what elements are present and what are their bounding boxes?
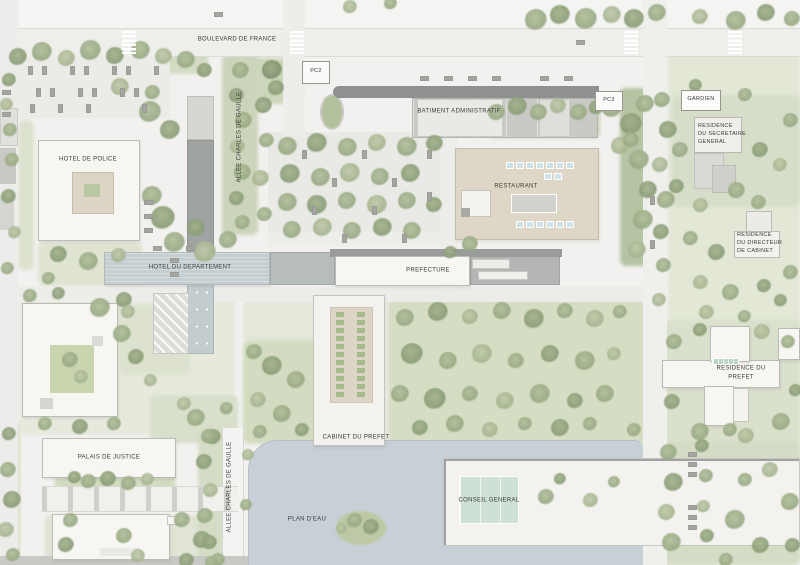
site-plan: BOULEVARD DE FRANCE ALLEE CHARLES DE GAU… xyxy=(0,0,800,565)
road-top-strip xyxy=(0,0,800,28)
tree-icon xyxy=(142,186,162,206)
label-boulevard-de-france: BOULEVARD DE FRANCE xyxy=(198,36,277,45)
label-gardien: GARDIEN xyxy=(687,96,714,104)
cabinet-planting-row xyxy=(357,312,365,400)
road-grid-south xyxy=(268,232,444,246)
batiment-administratif-cell xyxy=(418,100,502,136)
building-left-edge xyxy=(0,148,16,184)
palais-south-step xyxy=(100,548,140,556)
tree-icon xyxy=(151,206,175,230)
restaurant-annex-corner xyxy=(461,208,470,217)
tree-icon xyxy=(164,232,185,253)
parked-car-icon xyxy=(444,76,453,81)
label-pc3: PC3 xyxy=(603,97,615,105)
building-left-edge xyxy=(0,108,18,146)
lawn-central-park xyxy=(388,298,645,445)
building-residence-du-prefet-top xyxy=(710,326,750,362)
building-right-edge xyxy=(778,328,800,360)
hotel-de-police-garden xyxy=(84,184,100,197)
label-allee-charles-de-gaulle-south: ALLEE CHARLES DE GAULLE xyxy=(226,442,235,533)
label-hotel-du-departement: HOTEL DU DEPARTEMENT xyxy=(149,264,232,273)
square-west-rooftop xyxy=(40,398,53,409)
building-batiment-administratif-roof xyxy=(333,86,599,98)
residence-secretaire-wing2 xyxy=(712,165,736,193)
building-wing-north xyxy=(187,96,214,140)
label-palais-de-justice: PALAIS DE JUSTICE xyxy=(78,454,140,463)
label-conseil-general: CONSEIL GENERAL xyxy=(459,497,520,506)
label-cabinet-du-prefet: CABINET DU PREFET xyxy=(323,434,390,443)
road-boulevard-de-france xyxy=(0,28,800,57)
label-residence-secretaire-general: RESIDENCE DU SECRETAIRE GENERAL xyxy=(698,123,746,147)
building-band-crossing xyxy=(270,252,335,285)
parked-car-icon xyxy=(153,246,162,251)
parked-car-icon xyxy=(540,76,549,81)
palais-colonnade xyxy=(42,486,238,512)
lawn-parking-grid xyxy=(268,132,448,242)
parked-car-icon xyxy=(564,76,573,81)
building-residence-du-prefet-bottom xyxy=(704,386,734,426)
label-pc2: PC2 xyxy=(310,68,322,76)
building-wing-mid xyxy=(187,140,214,258)
square-west-rooftop xyxy=(92,336,103,346)
residence-prefet-column xyxy=(733,388,749,422)
parked-car-icon xyxy=(144,228,153,233)
tree-icon xyxy=(160,120,180,140)
building-prefecture-annex2 xyxy=(478,271,528,280)
parking-hatched xyxy=(153,293,189,354)
parked-car-icon xyxy=(492,76,501,81)
label-allee-charles-de-gaulle-north: ALLEE CHARLES DE GAULLE xyxy=(236,92,245,183)
label-hotel-de-police: HOTEL DE POLICE xyxy=(59,156,117,165)
label-residence-directeur-cabinet: RESIDENCE DU DIRECTEUR DE CABINET xyxy=(737,232,782,256)
lawn-patch xyxy=(18,120,34,270)
parked-car-icon xyxy=(144,214,153,219)
cabinet-planting-row xyxy=(336,312,344,400)
parking-lot-northwest xyxy=(8,56,170,118)
turnaround-oval xyxy=(320,94,344,130)
label-residence-du-prefet: RESIDENCE DU PREFET xyxy=(712,364,771,381)
restaurant-patio xyxy=(511,194,557,213)
label-batiment-administratif: BATIMENT ADMINISTRATIF xyxy=(417,108,500,117)
palais-annex xyxy=(167,516,183,525)
parked-car-icon xyxy=(144,200,153,205)
label-restaurant: RESTAURANT xyxy=(494,183,537,192)
parked-car-icon xyxy=(468,76,477,81)
square-west-courtyard xyxy=(50,345,94,393)
island xyxy=(336,511,386,545)
label-plan-deau: PLAN D'EAU xyxy=(288,516,326,525)
parked-car-icon xyxy=(420,76,429,81)
building-left-edge xyxy=(0,196,14,230)
building-prefecture-annex xyxy=(472,259,510,269)
label-prefecture: PREFECTURE xyxy=(406,267,450,276)
batiment-administratif-cell xyxy=(540,100,568,136)
